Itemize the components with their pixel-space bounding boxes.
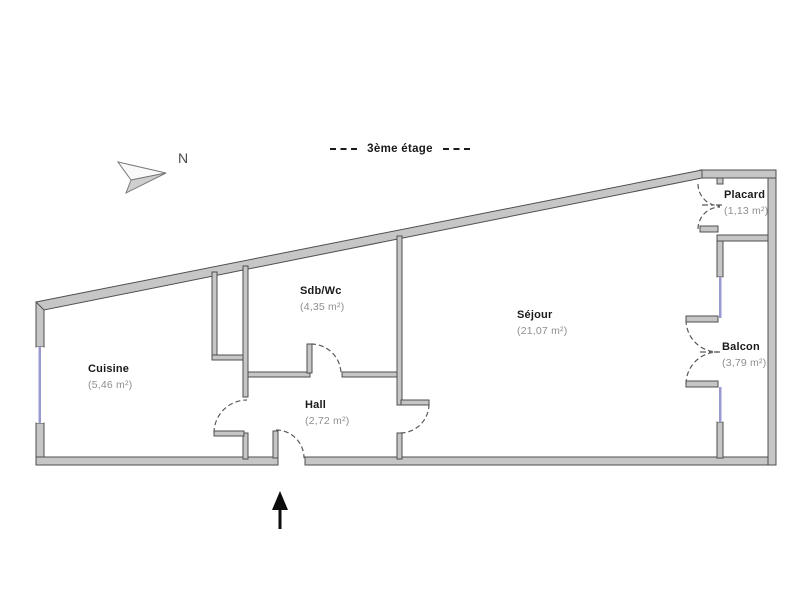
double-door-placard — [698, 184, 722, 232]
door-cuisine — [214, 400, 247, 436]
wall-cuisine-upper — [243, 266, 248, 397]
room-label-cuisine: Cuisine (5,46 m²) — [88, 362, 132, 392]
floor-plan-page: 3ème étage N Cuisine (5,46 m²) Sdb/Wc (4… — [0, 0, 800, 600]
wall-top-right — [700, 170, 776, 178]
french-door-balcon — [686, 316, 722, 387]
wall-slanted-top — [36, 170, 702, 310]
room-area: (5,46 m²) — [88, 378, 132, 392]
room-area: (4,35 m²) — [300, 300, 344, 314]
outer-walls — [36, 170, 776, 465]
room-label-sejour: Séjour (21,07 m²) — [517, 308, 567, 338]
room-name: Placard — [724, 188, 768, 202]
wall-balcon-lower — [717, 422, 723, 458]
room-name: Cuisine — [88, 362, 132, 376]
room-label-hall: Hall (2,72 m²) — [305, 398, 349, 428]
room-area: (21,07 m²) — [517, 324, 567, 338]
entrance-arrow-icon — [272, 491, 288, 529]
title-dash-right — [443, 148, 470, 150]
window-balcon-upper — [718, 277, 723, 318]
wall-duct-left — [212, 272, 217, 360]
room-area: (3,79 m²) — [722, 356, 766, 370]
page-title: 3ème étage — [0, 143, 800, 155]
room-label-sdbwc: Sdb/Wc (4,35 m²) — [300, 284, 344, 314]
windows — [37, 277, 723, 423]
wall-bottom-right — [305, 457, 776, 465]
wall-sdbwc-bottom-left — [248, 372, 310, 377]
title-dash-left — [330, 148, 357, 150]
door-sejour — [400, 400, 429, 433]
window-cuisine-left — [37, 347, 44, 423]
wall-right — [768, 170, 776, 465]
floor-plan-drawing — [0, 0, 800, 600]
room-name: Hall — [305, 398, 349, 412]
room-label-placard: Placard (1,13 m²) — [724, 188, 768, 218]
wall-left-upper — [36, 303, 44, 347]
room-area: (2,72 m²) — [305, 414, 349, 428]
door-sdbwc — [307, 344, 341, 374]
wall-sdbwc-bottom-right — [342, 372, 397, 377]
room-name: Balcon — [722, 340, 766, 354]
wall-balcon-upper — [717, 241, 723, 277]
wall-placard-jamb — [717, 178, 723, 184]
room-label-balcon: Balcon (3,79 m²) — [722, 340, 766, 370]
wall-sejour-upper — [397, 236, 402, 405]
room-name: Sdb/Wc — [300, 284, 344, 298]
room-name: Séjour — [517, 308, 567, 322]
north-label: N — [178, 150, 188, 166]
wall-sejour-lower — [397, 433, 402, 459]
wall-cuisine-lower — [243, 433, 248, 459]
wall-placard-bottom — [717, 235, 768, 241]
wall-bottom-left — [36, 457, 278, 465]
floor-title: 3ème étage — [367, 143, 433, 155]
door-entrance — [273, 430, 304, 458]
window-balcon-lower — [718, 387, 723, 422]
north-arrow-icon — [118, 162, 166, 193]
room-area: (1,13 m²) — [724, 204, 768, 218]
